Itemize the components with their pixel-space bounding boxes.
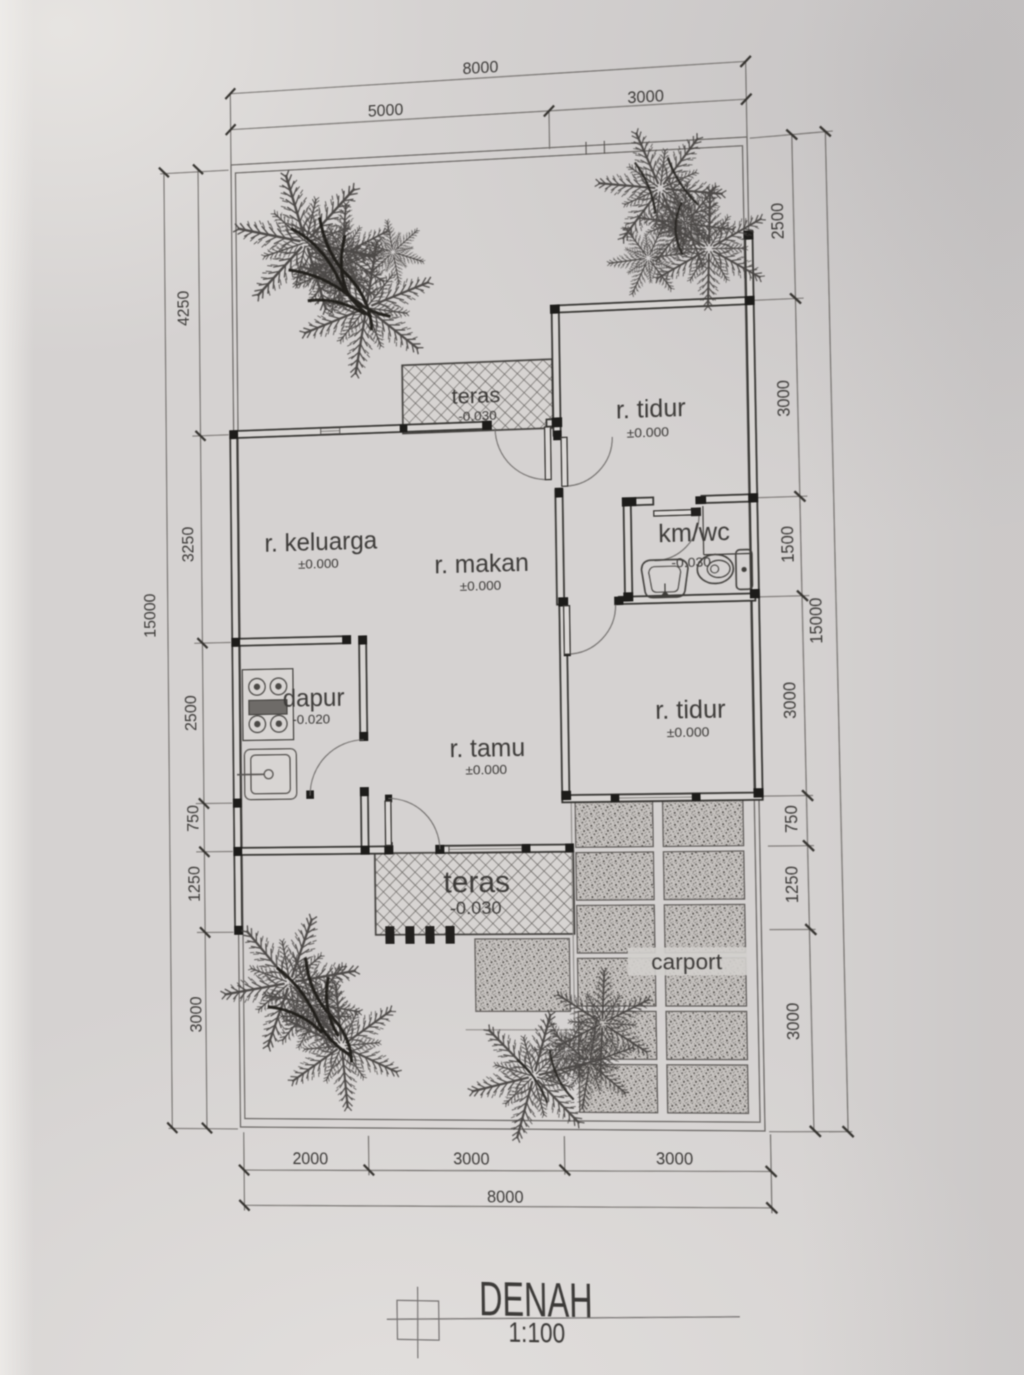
svg-text:8000: 8000 bbox=[487, 1189, 524, 1208]
svg-text:3250: 3250 bbox=[180, 526, 197, 562]
svg-text:1250: 1250 bbox=[783, 866, 802, 904]
svg-text:±0.000: ±0.000 bbox=[667, 724, 710, 741]
svg-text:r. tidur: r. tidur bbox=[655, 696, 726, 725]
svg-text:km/wc: km/wc bbox=[658, 519, 730, 549]
svg-text:4250: 4250 bbox=[176, 290, 193, 326]
svg-text:±0.000: ±0.000 bbox=[465, 761, 507, 777]
svg-text:3000: 3000 bbox=[781, 681, 800, 719]
svg-text:3000: 3000 bbox=[775, 379, 794, 417]
svg-text:2000: 2000 bbox=[292, 1150, 328, 1168]
svg-text:3000: 3000 bbox=[627, 88, 664, 108]
svg-text:2500: 2500 bbox=[183, 695, 200, 731]
svg-text:r. tamu: r. tamu bbox=[449, 735, 525, 764]
svg-text:dapur: dapur bbox=[283, 685, 345, 713]
svg-text:teras: teras bbox=[443, 866, 510, 900]
svg-text:r. keluarga: r. keluarga bbox=[264, 528, 378, 558]
svg-text:15000: 15000 bbox=[142, 593, 159, 638]
svg-text:r. makan: r. makan bbox=[434, 550, 529, 580]
svg-text:1:100: 1:100 bbox=[508, 1316, 565, 1349]
svg-text:±0.000: ±0.000 bbox=[298, 555, 339, 572]
svg-text:teras: teras bbox=[451, 383, 500, 409]
svg-text:3000: 3000 bbox=[188, 996, 206, 1032]
svg-text:750: 750 bbox=[783, 805, 802, 833]
svg-text:3000: 3000 bbox=[453, 1151, 490, 1169]
svg-text:750: 750 bbox=[185, 805, 202, 832]
svg-text:-0.030: -0.030 bbox=[458, 407, 497, 424]
svg-text:2500: 2500 bbox=[769, 202, 788, 240]
svg-text:±0.000: ±0.000 bbox=[627, 424, 670, 441]
svg-text:carport: carport bbox=[651, 950, 722, 975]
svg-text:±0.000: ±0.000 bbox=[460, 577, 502, 594]
svg-text:3000: 3000 bbox=[656, 1150, 694, 1169]
svg-text:15000: 15000 bbox=[807, 597, 826, 644]
svg-text:1250: 1250 bbox=[186, 866, 203, 902]
svg-text:-0.020: -0.020 bbox=[292, 711, 330, 727]
svg-text:8000: 8000 bbox=[462, 59, 498, 79]
svg-text:-0.030: -0.030 bbox=[450, 897, 502, 918]
svg-text:1500: 1500 bbox=[779, 525, 798, 563]
svg-text:r. tidur: r. tidur bbox=[616, 395, 686, 425]
svg-text:3000: 3000 bbox=[784, 1002, 803, 1040]
svg-text:5000: 5000 bbox=[368, 101, 404, 120]
svg-text:-0.030: -0.030 bbox=[671, 554, 711, 571]
